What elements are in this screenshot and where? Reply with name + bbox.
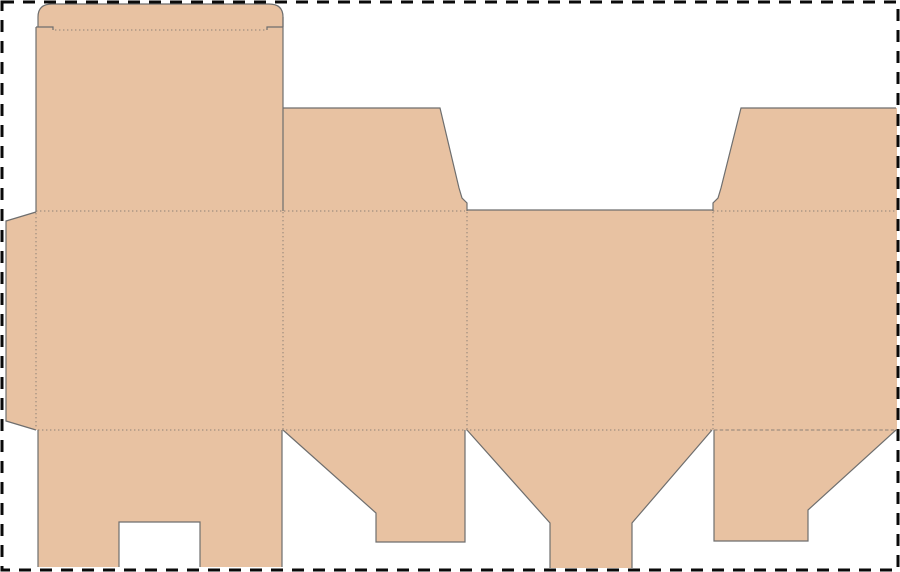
main-panel bbox=[36, 27, 283, 430]
board-fill-layer bbox=[6, 4, 897, 568]
dust-flap-left bbox=[283, 108, 467, 211]
box-dieline-svg bbox=[0, 0, 900, 572]
glue-flap bbox=[6, 212, 36, 430]
side-panel-left bbox=[283, 211, 467, 430]
dieline-canvas bbox=[0, 0, 900, 572]
bottom-flap-right bbox=[714, 430, 896, 541]
bottom-flap-left bbox=[283, 430, 465, 542]
back-panel bbox=[467, 210, 713, 430]
tuck-flap bbox=[38, 4, 283, 30]
bottom-flap-main bbox=[38, 430, 282, 567]
dust-flap-right bbox=[713, 108, 897, 211]
bottom-flap-back bbox=[467, 430, 712, 568]
side-panel-right bbox=[713, 211, 897, 430]
